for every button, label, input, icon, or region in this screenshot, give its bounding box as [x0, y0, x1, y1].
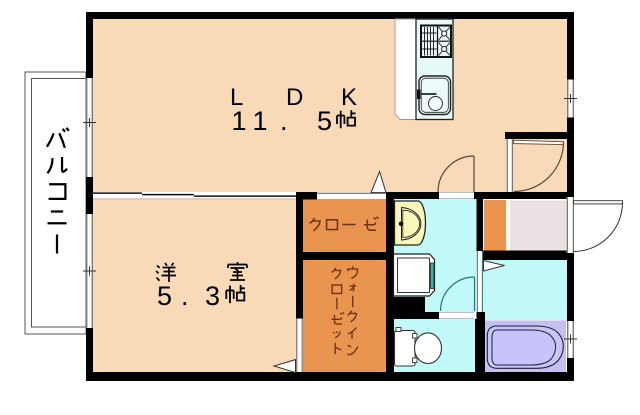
svg-text:.: .	[280, 106, 288, 136]
svg-text:K: K	[341, 84, 357, 111]
svg-text:5: 5	[157, 281, 172, 311]
svg-text:D: D	[286, 84, 303, 111]
svg-text:5: 5	[317, 106, 332, 136]
svg-text:3: 3	[205, 281, 220, 311]
svg-text:1: 1	[232, 106, 247, 136]
svg-text:.: .	[181, 281, 189, 311]
svg-text:1: 1	[253, 106, 268, 136]
